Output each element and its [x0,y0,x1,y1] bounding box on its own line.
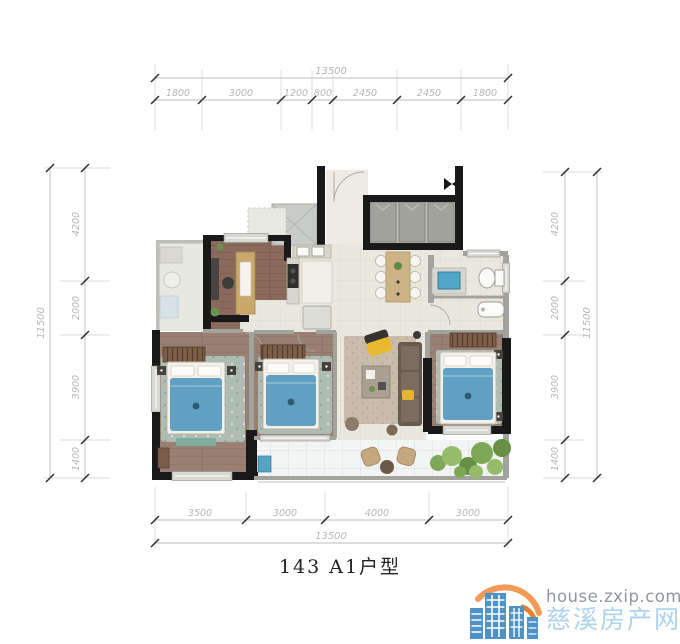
watermark-site-url: house.zxip.com [546,589,680,606]
dim-label: 3000 [273,508,297,519]
wardrobe [163,347,205,362]
wardrobe [450,333,496,347]
living-room [344,329,422,436]
side-table [387,425,398,436]
dimension-top: 13500 1800 3000 1200 800 2450 2450 1800 [151,64,512,130]
plant [211,308,220,317]
wardrobe [261,345,305,359]
floor-plan-drawing: 13500 1800 3000 1200 800 2450 2450 1800 … [0,0,680,644]
plan-title: 143 A1户型 [0,552,680,579]
dim-label: 1200 [284,88,308,99]
bed [167,362,225,434]
floor-lamp [413,331,421,339]
elevator-core [366,198,458,246]
dimension-bottom: 3500 3000 4000 3000 13500 [151,487,512,549]
dim-bottom-total: 13500 [315,531,347,542]
dim-label: 1400 [550,447,561,471]
bed-bench [176,438,216,446]
dim-label: 3500 [188,508,212,519]
dim-label: 800 [314,88,332,99]
watermark-site-name: 慈溪房产网 [546,606,680,635]
dim-label: 4200 [550,212,561,236]
pouf [345,417,359,431]
dim-top-total: 13500 [315,66,347,77]
dim-label: 2000 [550,296,561,320]
dim-label: 3000 [229,88,253,99]
dim-label: 2450 [417,88,441,99]
dim-label: 4200 [71,212,82,236]
toilet [479,268,495,288]
dim-label: 3000 [456,508,480,519]
dim-label: 4000 [365,508,389,519]
desk-chair [222,277,234,289]
table-plant [394,262,402,270]
watermark: house.zxip.com 慈溪房产网 [468,583,680,644]
dim-label: 1800 [473,88,497,99]
bookshelf [211,258,219,300]
dimension-left: 11500 4200 2000 3900 1400 [36,164,110,482]
bedroom-middle [255,345,332,434]
dim-right-total: 11500 [582,307,593,339]
dresser [158,448,169,468]
balcony-table [380,460,394,474]
kitchen-island [302,261,332,303]
dim-label: 2450 [353,88,377,99]
bed [263,359,319,429]
dim-label: 2000 [71,296,82,320]
dimension-right: 11500 4200 2000 3900 1400 [543,168,603,482]
dim-label: 3900 [71,375,82,399]
dim-label: 1400 [71,447,82,471]
dim-label: 3900 [550,375,561,399]
entry-hall-floor [326,170,368,245]
sofa [398,342,422,426]
fridge [303,306,331,329]
kitchen-sink [297,247,309,256]
floor-plan-page: 13500 1800 3000 1200 800 2450 2450 1800 … [0,0,680,644]
dining-area [376,252,421,302]
washbasin [438,272,460,289]
dim-label: 1800 [166,88,190,99]
dim-left-total: 11500 [36,307,47,339]
bed [440,352,496,424]
site-logo-icon [468,583,544,641]
adjacent-unit-left [156,240,203,331]
balcony-mat [258,456,271,472]
cooktop [288,264,299,288]
